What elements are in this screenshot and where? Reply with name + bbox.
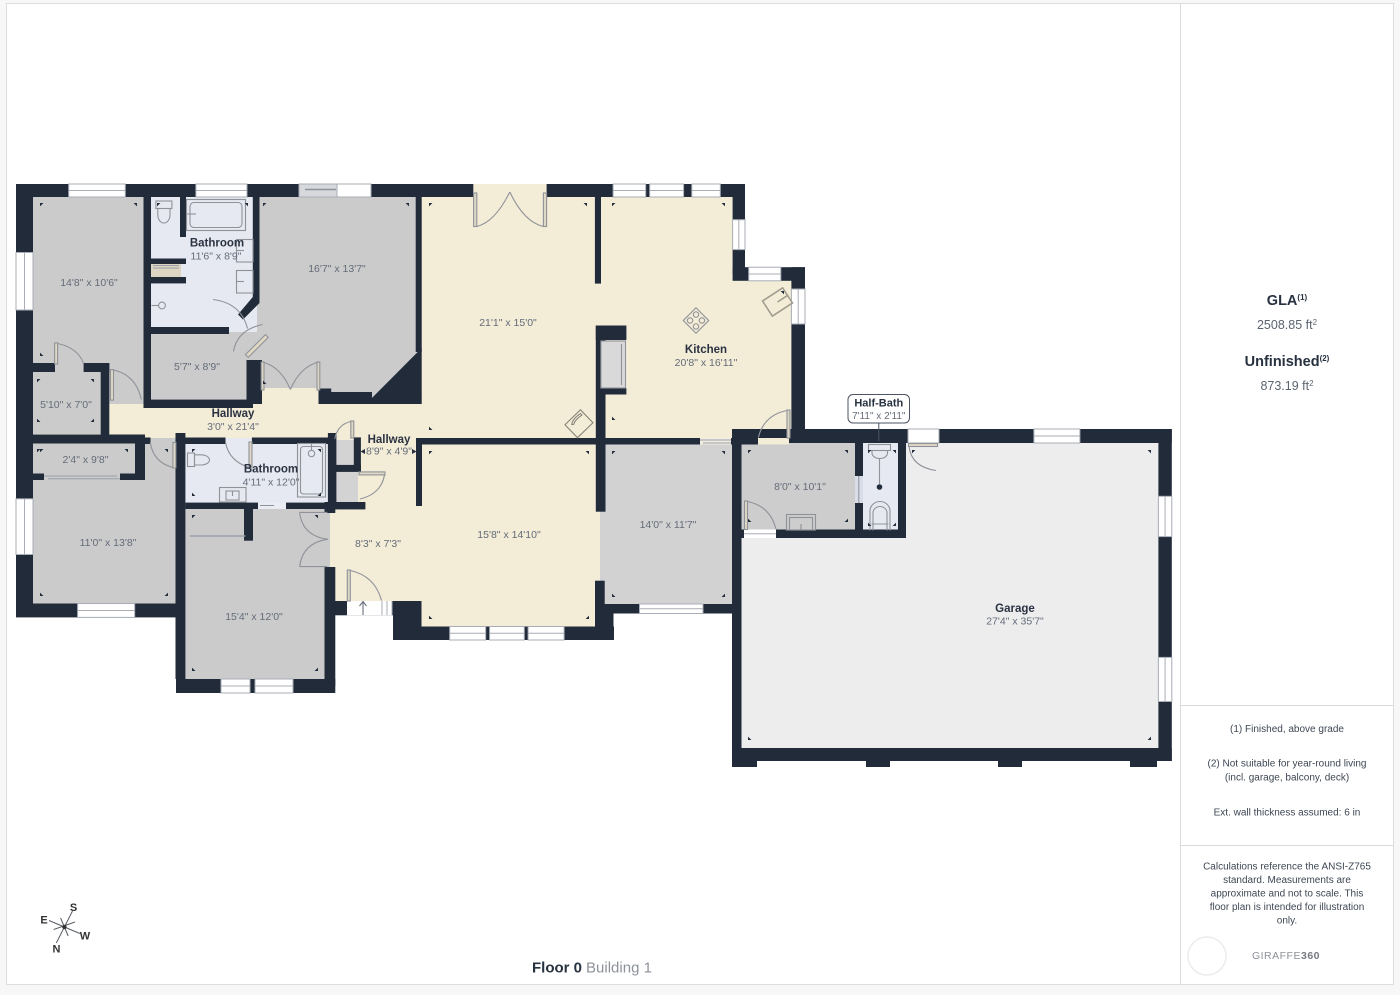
- svg-text:(2) Not suitable for year-roun: (2) Not suitable for year-round living: [1208, 759, 1367, 770]
- svg-text:3'0" x 21'4": 3'0" x 21'4": [207, 421, 259, 433]
- svg-text:Unfinished(2): Unfinished(2): [1245, 354, 1330, 370]
- svg-text:(1) Finished, above grade: (1) Finished, above grade: [1230, 724, 1344, 735]
- svg-text:floor plan is intended for ill: floor plan is intended for illustration: [1210, 902, 1365, 913]
- svg-text:Hallway: Hallway: [212, 408, 255, 420]
- svg-text:7'11" x 2'11": 7'11" x 2'11": [852, 411, 906, 422]
- svg-text:8'9" x 4'9": 8'9" x 4'9": [366, 446, 412, 458]
- svg-text:N: N: [53, 944, 61, 956]
- svg-text:4'11" x 12'0": 4'11" x 12'0": [243, 477, 300, 489]
- svg-text:15'8" x 14'10": 15'8" x 14'10": [477, 529, 541, 541]
- svg-text:14'8" x 10'6": 14'8" x 10'6": [60, 277, 118, 289]
- svg-text:2'4" x 9'8": 2'4" x 9'8": [63, 454, 109, 466]
- svg-text:16'7" x 13'7": 16'7" x 13'7": [308, 263, 366, 275]
- svg-text:11'6" x 8'9": 11'6" x 8'9": [191, 251, 242, 263]
- svg-text:14'0" x 11'7": 14'0" x 11'7": [640, 519, 697, 531]
- svg-text:Calculations reference the ANS: Calculations reference the ANSI-Z765: [1203, 862, 1371, 873]
- svg-text:873.19 ft2: 873.19 ft2: [1260, 379, 1314, 393]
- svg-text:Bathroom: Bathroom: [244, 464, 298, 476]
- svg-text:Building 1: Building 1: [586, 960, 652, 977]
- svg-text:5'7" x 8'9": 5'7" x 8'9": [174, 361, 220, 373]
- svg-text:8'0" x 10'1": 8'0" x 10'1": [774, 481, 826, 493]
- svg-text:Garage: Garage: [995, 603, 1035, 615]
- svg-text:Bathroom: Bathroom: [190, 238, 244, 250]
- svg-text:15'4" x 12'0": 15'4" x 12'0": [225, 611, 283, 623]
- svg-text:2508.85 ft2: 2508.85 ft2: [1257, 318, 1318, 332]
- svg-text:(incl. garage, balcony, deck): (incl. garage, balcony, deck): [1225, 773, 1349, 784]
- svg-text:GIRAFFE360: GIRAFFE360: [1252, 950, 1320, 962]
- svg-text:20'8" x 16'11": 20'8" x 16'11": [675, 357, 738, 369]
- svg-text:11'0" x 13'8": 11'0" x 13'8": [80, 537, 137, 549]
- svg-text:only.: only.: [1277, 916, 1297, 927]
- svg-text:Ext. wall thickness assumed: 6: Ext. wall thickness assumed: 6 in: [1214, 808, 1361, 819]
- svg-text:5'10" x 7'0": 5'10" x 7'0": [40, 399, 92, 411]
- svg-text:27'4" x 35'7": 27'4" x 35'7": [986, 616, 1044, 628]
- svg-text:8'3" x 7'3": 8'3" x 7'3": [355, 538, 401, 550]
- svg-text:Half-Bath: Half-Bath: [854, 398, 903, 410]
- svg-text:S: S: [70, 902, 77, 914]
- svg-text:W: W: [80, 931, 91, 943]
- svg-text:E: E: [40, 915, 47, 927]
- svg-text:21'1" x 15'0": 21'1" x 15'0": [479, 317, 537, 329]
- svg-text:Hallway: Hallway: [368, 434, 411, 446]
- svg-text:Kitchen: Kitchen: [685, 344, 727, 356]
- svg-text:standard. Measurements are: standard. Measurements are: [1223, 875, 1351, 886]
- svg-text:approximate and not to scale.: approximate and not to scale. This: [1211, 889, 1364, 900]
- svg-text:Floor 0: Floor 0: [532, 960, 582, 977]
